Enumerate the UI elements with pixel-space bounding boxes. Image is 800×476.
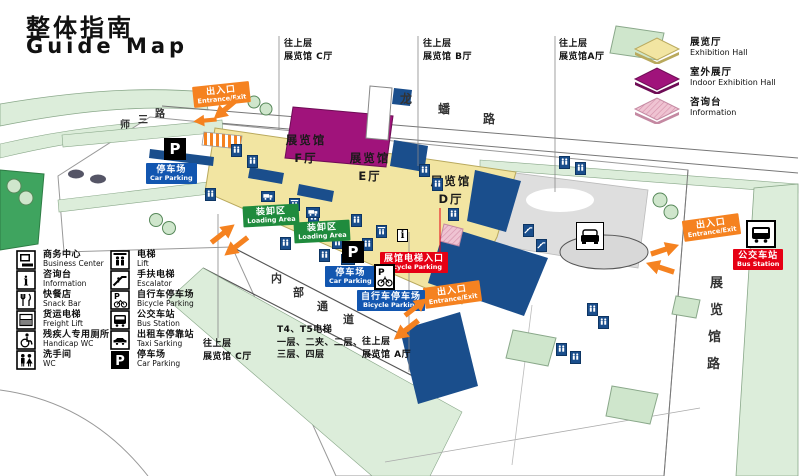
direction-arrow	[192, 112, 217, 129]
snack-bar-icon	[16, 290, 36, 310]
legend-item-information: 咨询台Information	[632, 94, 736, 124]
wc-icon	[448, 208, 459, 221]
legend-row-business-center: 商务中心Business Center	[16, 250, 104, 270]
loading-area-badge-2: 装卸区Loading Area	[293, 220, 350, 244]
wc-icon	[231, 144, 242, 157]
information-swatch	[632, 94, 682, 124]
road-shisan-char3: 路	[155, 105, 165, 120]
legend-item-indoor-hall: 室外展厅Indoor Exhibition Hall	[632, 64, 776, 94]
note-lower-hall-c: 往上层展览馆 C厅	[203, 338, 252, 363]
legend-row-lift: 电梯Lift	[110, 250, 156, 270]
taxi-stand-icon	[110, 330, 130, 350]
business-center-icon	[16, 250, 36, 270]
wc-icon	[570, 351, 581, 364]
road-internal-char2: 部	[293, 284, 304, 300]
wc-icon	[319, 249, 330, 262]
legend-row-snack-bar: 快餐店Snack Bar	[16, 290, 81, 310]
wc-icon	[587, 303, 598, 316]
wc-icon	[556, 343, 567, 356]
wc-icon	[351, 214, 362, 227]
legend-row-bicycle-parking: P 自行车停车场Bicycle Parking	[110, 290, 194, 310]
road-longpan-char3: 路	[483, 110, 495, 127]
legend-row-escalator: 手扶电梯Escalator	[110, 270, 175, 290]
lawn-left	[0, 170, 44, 250]
bicycle-parking-icon: P	[110, 290, 130, 310]
wc-icon	[559, 156, 570, 169]
bus-station-icon	[746, 220, 776, 248]
exhibition-hall-swatch	[632, 34, 682, 64]
loading-area-badge-1: 装卸区Loading Area	[242, 204, 299, 228]
legend-row-handicap-wc: 残疾人专用厕所Handicap WC	[16, 330, 110, 350]
legend-item-exhibition-hall: 展览厅Exhibition Hall	[632, 34, 748, 64]
bus-station-icon	[110, 310, 130, 330]
information-icon: i	[16, 270, 36, 290]
car-parking-icon: P	[342, 241, 364, 263]
car-parking-badge-center: 停车场Car Parking	[325, 266, 376, 287]
note-upper-hall-a: 往上层展览馆A厅	[559, 38, 604, 63]
guide-map: 整体指南 Guide Map 展览厅Exhibition Hall 室外展厅In…	[0, 0, 800, 476]
legend-row-bus-station: 公交车站Bus Station	[110, 310, 180, 330]
wc-icon	[419, 164, 430, 177]
svg-text:P: P	[378, 268, 385, 278]
truck-icon	[306, 207, 320, 218]
lift-icon	[376, 225, 387, 238]
hall-e-label: 展览馆E厅	[339, 150, 401, 186]
car-pickup-icon	[576, 222, 604, 250]
hall-d-label: 展览馆D厅	[420, 173, 482, 209]
info-icon: i	[397, 229, 408, 242]
truck-icon	[261, 191, 275, 202]
road-internal-char3: 通	[317, 298, 328, 314]
taxi-loop	[560, 235, 648, 269]
wc-icon	[280, 237, 291, 250]
legend-row-taxi-stand: 出租车停靠站Taxi Sarking	[110, 330, 194, 350]
legend-row-car-parking: P 停车场Car Parking	[110, 350, 180, 370]
legend-row-freight-lift: 货运电梯Freight Lift	[16, 310, 83, 330]
legend-row-information: i 咨询台Information	[16, 270, 86, 290]
wc-icon	[575, 162, 586, 175]
freight-lift-icon	[16, 310, 36, 330]
road-zhanlanguan-char4: 路	[707, 353, 720, 372]
page-title-en: Guide Map	[26, 34, 188, 58]
bicycle-parking-icon: P	[374, 264, 395, 290]
road-longpan-char1: 龙	[400, 90, 412, 107]
car-parking-badge-west: 停车场Car Parking	[146, 163, 197, 184]
road-shisan-char1: 师	[120, 116, 130, 131]
note-elevator-floors: T4、T5电梯 一层、二夹、二层、 三层、四层	[277, 324, 363, 362]
wc-icon	[16, 350, 36, 370]
escalator-icon	[110, 270, 130, 290]
legend-row-wc: 洗手间WC	[16, 350, 72, 370]
handicap-wc-icon	[16, 330, 36, 350]
note-upper-hall-c: 往上层展览馆 C厅	[284, 38, 333, 63]
road-longpan-char2: 蟠	[438, 100, 450, 117]
note-upper-hall-b: 往上层展览馆 B厅	[423, 38, 472, 63]
road-zhanlanguan-char1: 展	[710, 272, 723, 291]
wc-icon	[432, 178, 443, 191]
car-parking-icon: P	[110, 350, 130, 370]
road-zhanlanguan-char3: 馆	[708, 326, 721, 345]
esc-icon	[536, 239, 547, 252]
wc-icon	[598, 316, 609, 329]
road-internal-char1: 内	[271, 270, 282, 286]
car-parking-icon: P	[164, 138, 186, 160]
bus-station-badge: 公交车站Bus Station	[733, 249, 783, 270]
hall-f-label: 展览馆F厅	[275, 132, 337, 168]
svg-text:P: P	[115, 354, 125, 369]
wc-icon	[247, 155, 258, 168]
road-zhanlanguan-char2: 览	[710, 299, 723, 318]
indoor-hall-swatch	[632, 64, 682, 94]
road-shisan-char2: 三	[138, 111, 148, 126]
svg-text:i: i	[24, 275, 29, 290]
svg-text:P: P	[114, 292, 120, 301]
esc-icon	[523, 224, 534, 237]
wc-icon	[205, 188, 216, 201]
lift-icon	[110, 250, 130, 270]
